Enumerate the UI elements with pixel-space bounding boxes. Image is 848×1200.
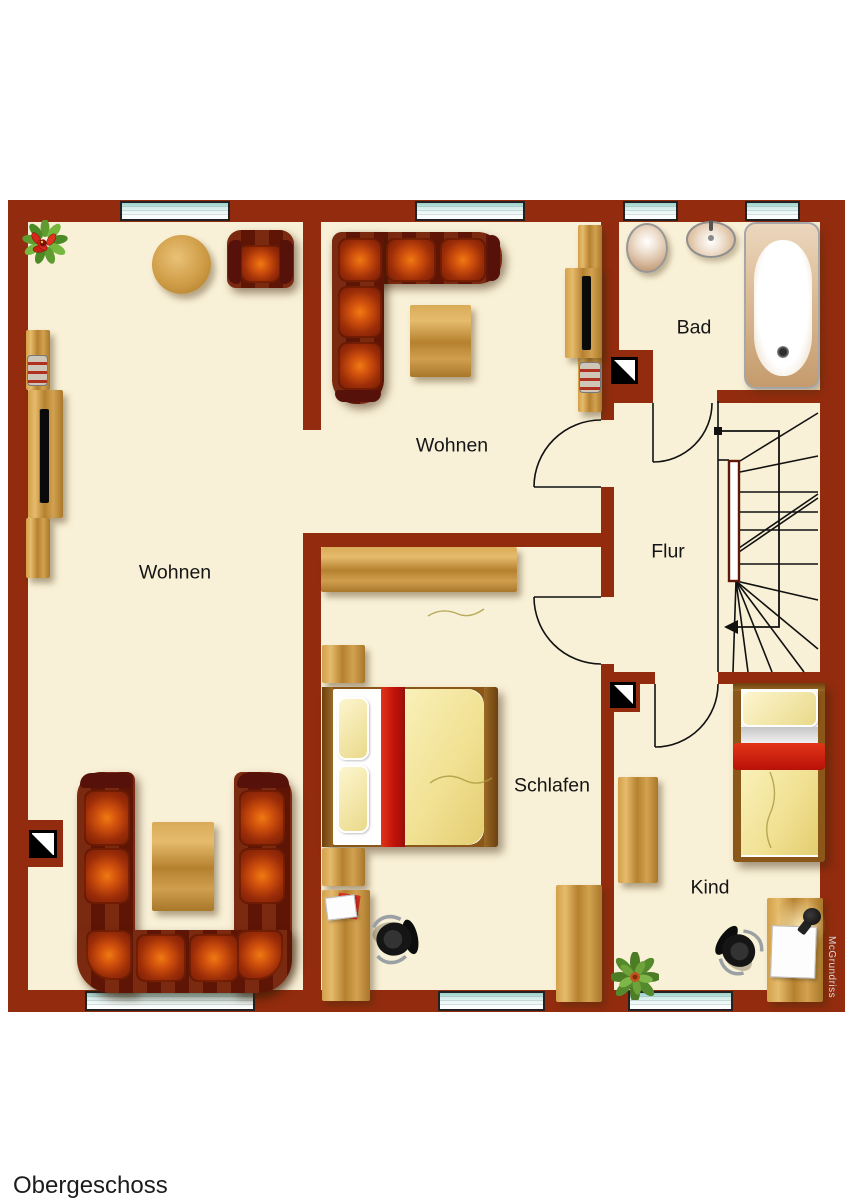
armchair-arm-right [280, 240, 293, 284]
sofa-cushion [338, 286, 382, 338]
sofa-cushion [86, 930, 132, 980]
room-label-living-left: Wohnen [139, 562, 211, 585]
l-sofa-cap-bottom [335, 390, 381, 402]
bed-sheet-fold [741, 727, 818, 743]
toilet [626, 223, 668, 273]
window-living-bottom [85, 991, 255, 1011]
books-left [27, 355, 48, 386]
pillow [337, 697, 369, 760]
lamp-head-icon [803, 908, 821, 925]
chimney-icon-child [610, 682, 636, 708]
wall-hall-upper-jamb [601, 403, 614, 420]
wall-hall-mid [601, 487, 614, 597]
room-label-child: Kind [690, 877, 729, 900]
wall-outer-left [8, 200, 28, 1012]
window-living-top [120, 201, 230, 221]
bed-blanket [405, 689, 484, 845]
paper-bedroom [325, 894, 358, 920]
sink [686, 221, 736, 258]
sofa-cushion [338, 342, 382, 390]
chimney-icon-living [29, 830, 57, 858]
window-living2-top [415, 201, 525, 221]
room-label-bath: Bad [677, 317, 712, 340]
wall-living-divider-upper [303, 222, 321, 430]
wall-bath-stairs [717, 390, 820, 403]
wall-bedroom-left [303, 533, 321, 990]
u-sofa-cap-right [237, 773, 289, 788]
plant-icon-child [611, 952, 659, 1000]
round-table [152, 235, 211, 294]
nightstand-bottom [322, 848, 365, 886]
page-title: Obergeschoss [13, 1172, 168, 1200]
sofa-cushion [440, 238, 486, 282]
armchair-seat [240, 245, 281, 283]
sofa-cushion [84, 848, 130, 904]
wall-living-bedroom [303, 533, 614, 547]
pillow [741, 690, 818, 727]
sofa-cushion [189, 934, 239, 982]
bed-blanket [741, 770, 818, 855]
chimney-icon-bath [611, 357, 638, 384]
sink-drain-icon [708, 235, 714, 241]
sofa-cushion [386, 238, 436, 282]
double-bed [322, 687, 498, 847]
wall-bedroom-child [601, 664, 614, 990]
wall-living-bath [601, 222, 619, 352]
nightstand-top [322, 645, 365, 683]
shelf-unit-left-bottom [26, 518, 50, 578]
single-bed [733, 683, 825, 862]
books-living2 [579, 362, 601, 393]
wardrobe-bedroom [321, 547, 517, 592]
bed-rail-right [484, 687, 498, 847]
bathtub [744, 222, 820, 389]
wardrobe-child [618, 777, 658, 883]
floorplan-canvas: Wohnen Wohnen Bad Flur Schlafen Kind McG… [0, 0, 848, 1200]
sofa-cushion [239, 848, 285, 904]
tv-living2 [581, 276, 591, 350]
tv-left [39, 409, 49, 503]
cabinet-bedroom [556, 885, 602, 1002]
plant-icon-living [22, 220, 68, 264]
room-label-living-top: Wohnen [416, 435, 488, 458]
room-label-bedroom: Schlafen [514, 775, 590, 798]
window-bath-2 [745, 201, 800, 221]
faucet-icon [709, 220, 713, 231]
armchair [227, 230, 294, 288]
paper-child [770, 925, 817, 979]
bathtub-drain-icon [777, 346, 789, 358]
u-sofa-cap-left [80, 773, 132, 788]
pillow [337, 765, 369, 833]
l-sofa-cap-right [488, 235, 500, 281]
coffee-table-living2 [410, 305, 471, 377]
office-chair-bedroom [362, 906, 428, 972]
sofa-cushion [84, 790, 130, 846]
coffee-table-living [152, 822, 214, 911]
armchair-arm-left [228, 240, 241, 284]
window-bedroom-bottom [438, 991, 545, 1011]
window-bath-1 [623, 201, 678, 221]
sofa-cushion [338, 238, 382, 282]
bed-rail-left [322, 687, 333, 847]
room-label-hall: Flur [651, 541, 685, 564]
sofa-cushion [239, 790, 285, 846]
bed-runner-red [733, 743, 825, 770]
sofa-cushion [136, 934, 186, 982]
bed-runner-red [381, 687, 405, 847]
watermark: McGrundriss [826, 936, 837, 1006]
wall-outer-right [820, 200, 845, 1012]
